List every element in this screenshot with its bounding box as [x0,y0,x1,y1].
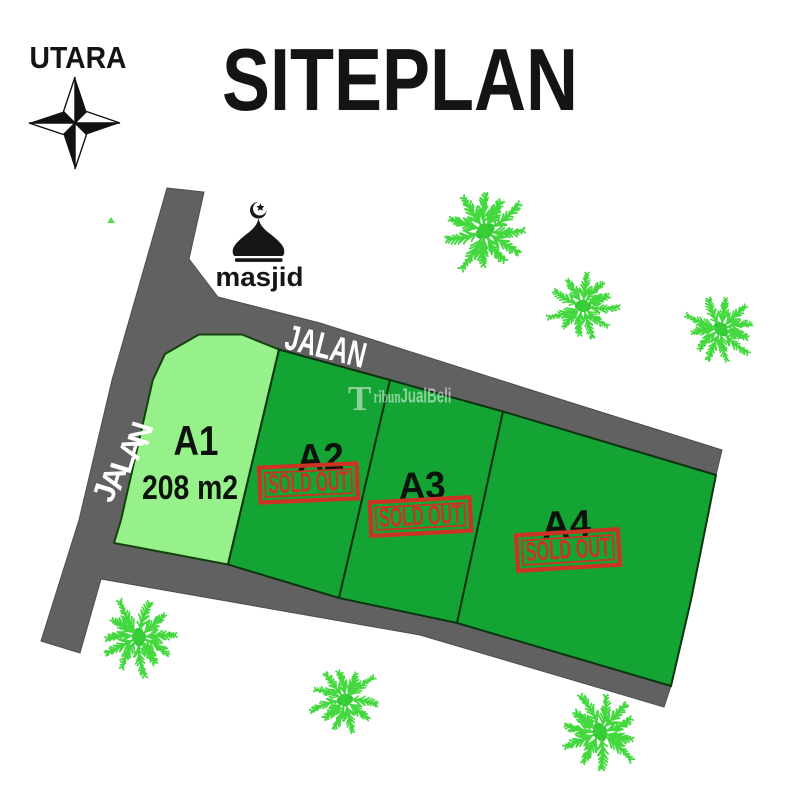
svg-text:SITEPLAN: SITEPLAN [222,30,578,129]
svg-text:208 m2: 208 m2 [142,469,238,507]
svg-text:JualBeli: JualBeli [401,386,452,408]
svg-text:SOLD OUT: SOLD OUT [378,499,463,533]
svg-text:ribun: ribun [374,387,401,407]
svg-text:T: T [348,379,371,418]
svg-text:UTARA: UTARA [30,40,127,75]
svg-text:SOLD OUT: SOLD OUT [525,532,612,567]
svg-text:masjid: masjid [216,262,304,292]
svg-text:SOLD OUT: SOLD OUT [268,466,350,499]
svg-text:A1: A1 [174,417,219,464]
